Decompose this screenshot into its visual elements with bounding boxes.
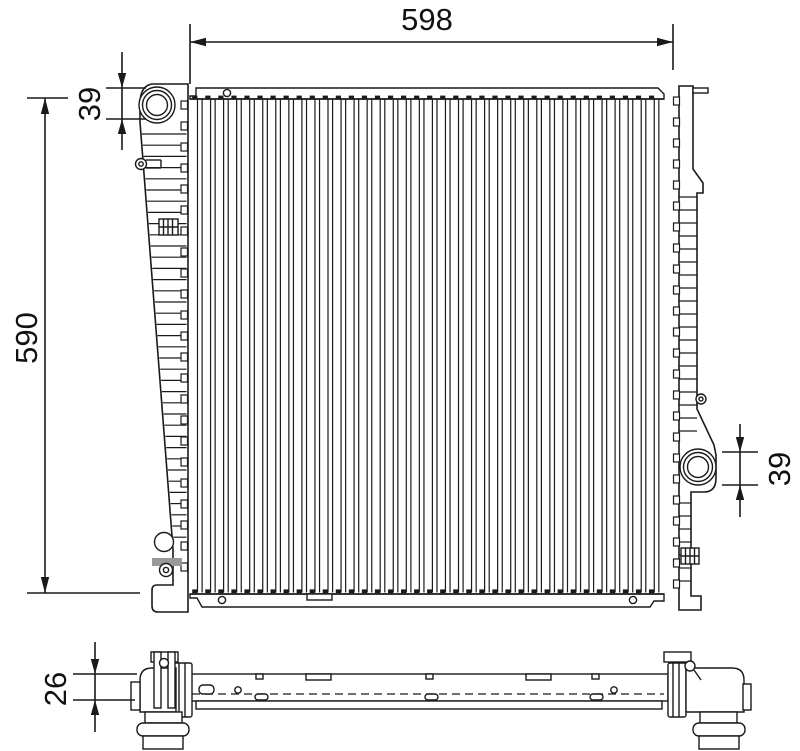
- right-side-tab: [743, 684, 751, 710]
- tube-end-cap-bottom: [323, 589, 328, 593]
- left-flange-tooth: [181, 164, 188, 172]
- arrowhead: [190, 38, 206, 46]
- right-flange-tooth: [674, 391, 680, 399]
- right-flange-tooth: [674, 139, 680, 147]
- tube-end-cap-bottom: [518, 589, 523, 593]
- dim-thickness: 26: [38, 642, 137, 732]
- outlet-port-inner: [688, 457, 709, 478]
- strip-tray: [526, 674, 551, 680]
- right-pipe-end: [699, 736, 739, 749]
- right-flange-tooth: [674, 517, 680, 525]
- tube-end-cap-bottom: [231, 589, 236, 593]
- left-flange-tooth: [181, 521, 188, 529]
- left-flange-teeth: [181, 101, 188, 571]
- strip-slot: [255, 694, 268, 700]
- left-flange-tooth: [181, 101, 188, 109]
- tube-end-cap-bottom: [284, 589, 289, 593]
- arrowhead: [736, 437, 744, 452]
- tube-end-cap-bottom: [558, 589, 563, 593]
- left-flange-tooth: [181, 458, 188, 466]
- tube-end-cap-bottom: [349, 589, 354, 593]
- arrowhead: [41, 98, 49, 114]
- tube-end-cap-bottom: [584, 589, 589, 593]
- left-side-tab: [131, 682, 140, 710]
- tube-end-cap-bottom: [205, 589, 210, 593]
- tube-end-cap-bottom: [505, 589, 510, 593]
- left-flange-tooth: [181, 332, 188, 340]
- right-flange-tooth: [674, 454, 680, 462]
- arrowhead: [736, 485, 744, 500]
- right-flange-tooth: [674, 223, 680, 231]
- left-flange-tooth: [181, 290, 188, 298]
- right-flange-tooth: [674, 118, 680, 126]
- tube-end-cap-bottom: [545, 589, 550, 593]
- tube-end-cap-bottom: [218, 589, 223, 593]
- right-collar: [668, 663, 686, 717]
- tube-end-cap-bottom: [388, 589, 393, 593]
- tube-end-cap-bottom: [610, 589, 615, 593]
- tube-end-cap-bottom: [532, 589, 537, 593]
- strip-slot: [199, 685, 214, 694]
- tube-end-cap-bottom: [571, 589, 576, 593]
- strip-notch: [592, 674, 599, 679]
- left-flange-tooth: [181, 122, 188, 130]
- tube-end-cap-bottom: [623, 589, 628, 593]
- right-flange-tooth: [674, 412, 680, 420]
- dim-inlet-label: 39: [72, 87, 107, 121]
- arrowhead: [91, 659, 99, 674]
- arrowhead: [91, 700, 99, 715]
- right-pipe-neck: [700, 712, 737, 723]
- right-flange-tooth: [674, 349, 680, 357]
- right-elbow-body: [686, 668, 744, 712]
- core-bottom-header: [190, 594, 664, 607]
- core-tubes: [192, 96, 659, 594]
- right-tank: [674, 86, 717, 610]
- arrowhead: [118, 119, 126, 134]
- strip-slot: [590, 694, 603, 700]
- core-bottom-tab: [307, 594, 332, 600]
- right-flange-tooth: [674, 496, 680, 504]
- left-flange-tooth: [181, 227, 188, 235]
- right-flange-tooth: [674, 181, 680, 189]
- dim-width-label: 598: [401, 2, 453, 37]
- header-hole-bottom-right: [629, 596, 636, 603]
- arrowhead: [41, 577, 49, 593]
- right-bracket-hole: [685, 661, 695, 671]
- tube-end-cap-bottom: [297, 589, 302, 593]
- tube-end-cap-bottom: [192, 589, 197, 593]
- tube-end-cap-bottom: [427, 589, 432, 593]
- left-flange-tooth: [181, 374, 188, 382]
- left-flange-tooth: [181, 542, 188, 550]
- left-flange-tooth: [181, 500, 188, 508]
- right-flange-tooth: [674, 328, 680, 336]
- left-pipe-end: [143, 736, 183, 749]
- right-flange-tooth: [674, 202, 680, 210]
- tube-end-cap-bottom: [597, 589, 602, 593]
- strip-notch: [256, 674, 263, 679]
- left-clip: [159, 219, 178, 235]
- right-flange-tooth: [674, 433, 680, 441]
- right-flange-tooth: [674, 307, 680, 315]
- left-flange-tooth: [181, 416, 188, 424]
- right-hose-fitting: [664, 652, 751, 749]
- tube-end-cap-bottom: [375, 589, 380, 593]
- tube-end-cap-bottom: [310, 589, 315, 593]
- arrowhead: [118, 73, 126, 88]
- header-hole-bottom-left: [218, 596, 225, 603]
- left-flange-tooth: [181, 311, 188, 319]
- tube-end-cap-bottom: [649, 589, 654, 593]
- right-tank-body: [679, 86, 716, 610]
- arrowhead: [657, 38, 673, 46]
- left-tank-bump: [155, 533, 174, 552]
- dim-outlet-offset: 39: [722, 424, 797, 517]
- drawing-canvas: 598 590 39 39: [0, 0, 800, 751]
- right-flange-tooth: [674, 580, 680, 588]
- strip-slot: [425, 694, 438, 700]
- dim-thickness-label: 26: [38, 672, 73, 706]
- strip-notch: [426, 674, 433, 679]
- right-flange-tooth: [674, 538, 680, 546]
- right-mount-eyelet-center: [699, 397, 703, 401]
- left-flange-tooth: [181, 143, 188, 151]
- filler-neck-inner: [147, 95, 168, 116]
- dim-inlet-offset: 39: [72, 52, 146, 150]
- left-flange-tooth: [181, 479, 188, 487]
- front-view: [136, 84, 717, 612]
- dim-width: 598: [190, 2, 673, 84]
- side-core-lip: [196, 701, 662, 709]
- right-tank-pin: [693, 88, 708, 93]
- radiator-technical-drawing: 598 590 39 39: [0, 0, 800, 751]
- tube-end-cap-bottom: [244, 589, 249, 593]
- left-flange-tooth: [181, 248, 188, 256]
- right-flange-tooth: [674, 559, 680, 567]
- tube-end-cap-bottom: [440, 589, 445, 593]
- left-bracket-hole: [160, 659, 169, 668]
- right-flange-tooth: [674, 475, 680, 483]
- left-flange-tooth: [181, 437, 188, 445]
- left-flange-tooth: [181, 269, 188, 277]
- right-flange-tooth: [674, 370, 680, 378]
- strip-hole: [611, 687, 617, 693]
- tube-end-cap-bottom: [257, 589, 262, 593]
- left-flange-tooth: [181, 353, 188, 361]
- radiator-core: [190, 88, 664, 607]
- right-flange-tooth: [674, 244, 680, 252]
- tube-end-cap-bottom: [271, 589, 276, 593]
- dim-outlet-label: 39: [762, 452, 797, 486]
- right-flange-tooth: [674, 97, 680, 105]
- right-hose-bead: [693, 723, 745, 736]
- tube-end-cap-bottom: [636, 589, 641, 593]
- left-hose-bead: [137, 723, 189, 736]
- right-flange-tooth: [674, 160, 680, 168]
- tube-end-cap-bottom: [414, 589, 419, 593]
- tube-end-cap-bottom: [336, 589, 341, 593]
- right-bracket-plate: [664, 652, 691, 662]
- bottom-view: [131, 652, 751, 749]
- drain-plug-center: [163, 567, 168, 572]
- dim-height: 590: [9, 98, 140, 593]
- tube-end-cap-bottom: [492, 589, 497, 593]
- header-hole-top: [223, 89, 230, 96]
- tube-end-cap-bottom: [362, 589, 367, 593]
- tube-end-cap-bottom: [466, 589, 471, 593]
- right-flange-tooth: [674, 265, 680, 273]
- left-hose-fitting: [131, 652, 192, 749]
- tube-end-cap-bottom: [453, 589, 458, 593]
- strip-hole: [235, 687, 241, 693]
- left-flange-tooth: [181, 185, 188, 193]
- left-flange-tooth: [181, 395, 188, 403]
- strip-tray: [306, 674, 331, 680]
- left-bracket-post: [168, 652, 175, 708]
- right-clip: [681, 548, 699, 564]
- left-tank: [136, 84, 189, 612]
- dim-height-label: 590: [9, 312, 44, 364]
- left-flange-tooth: [181, 206, 188, 214]
- right-flange-tooth: [674, 286, 680, 294]
- left-pipe-neck: [145, 712, 182, 723]
- tube-end-cap-bottom: [401, 589, 406, 593]
- tube-end-cap-bottom: [479, 589, 484, 593]
